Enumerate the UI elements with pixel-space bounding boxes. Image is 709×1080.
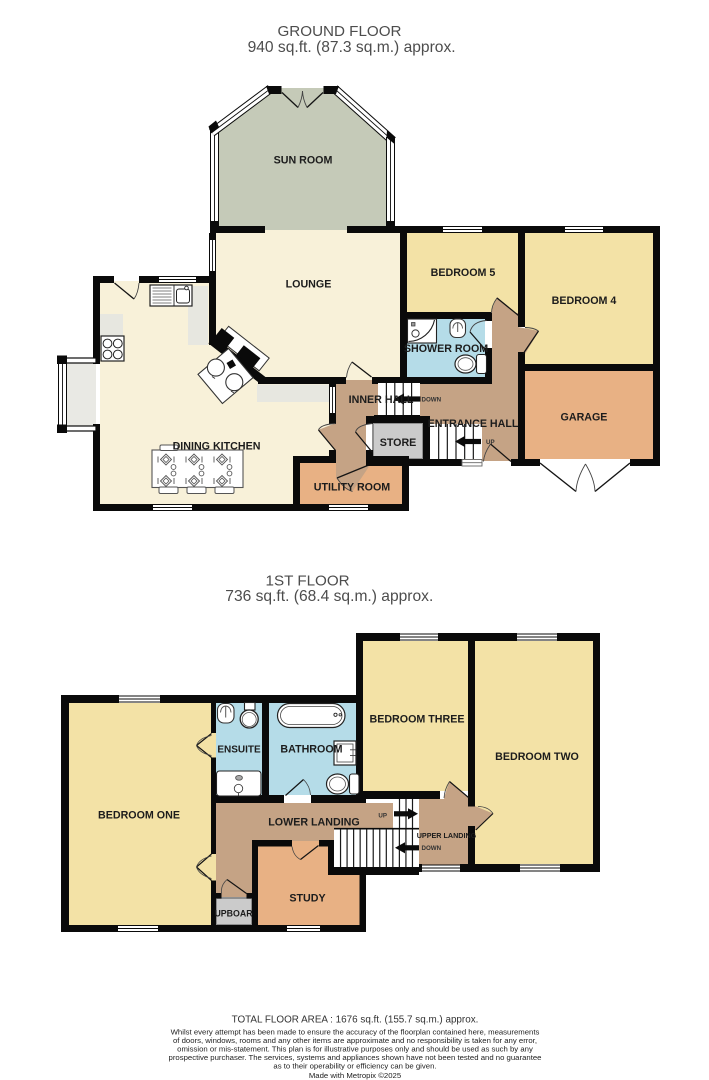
svg-text:UP: UP xyxy=(378,813,387,820)
svg-text:940 sq.ft. (87.3 sq.m.) approx: 940 sq.ft. (87.3 sq.m.) approx. xyxy=(248,39,456,56)
svg-text:LOWER LANDING: LOWER LANDING xyxy=(268,817,359,829)
svg-text:DOWN: DOWN xyxy=(422,396,442,403)
svg-text:STORE: STORE xyxy=(380,437,417,449)
svg-text:LOUNGE: LOUNGE xyxy=(286,279,332,291)
svg-text:Made with Metropix ©2025: Made with Metropix ©2025 xyxy=(309,1071,401,1080)
svg-text:1ST FLOOR: 1ST FLOOR xyxy=(266,572,350,589)
svg-text:GROUND FLOOR: GROUND FLOOR xyxy=(277,23,401,40)
svg-text:BEDROOM 5: BEDROOM 5 xyxy=(431,267,496,279)
svg-text:STUDY: STUDY xyxy=(289,893,325,905)
svg-text:SHOWER ROOM: SHOWER ROOM xyxy=(404,343,488,355)
svg-text:ENSUITE: ENSUITE xyxy=(217,745,261,756)
svg-text:INNER HALL: INNER HALL xyxy=(349,394,414,406)
svg-text:ENTRANCE HALL: ENTRANCE HALL xyxy=(428,418,519,430)
svg-text:BEDROOM TWO: BEDROOM TWO xyxy=(495,751,579,763)
svg-text:UPBOAR: UPBOAR xyxy=(214,909,253,919)
svg-text:UP: UP xyxy=(486,439,495,446)
svg-text:BEDROOM ONE: BEDROOM ONE xyxy=(98,810,180,822)
svg-text:DOWN: DOWN xyxy=(422,845,442,852)
svg-text:TOTAL FLOOR AREA : 1676 sq.ft.: TOTAL FLOOR AREA : 1676 sq.ft. (155.7 sq… xyxy=(232,1014,479,1025)
svg-text:DINING KITCHEN: DINING KITCHEN xyxy=(173,441,261,453)
svg-text:BEDROOM 4: BEDROOM 4 xyxy=(552,295,617,307)
svg-text:UPPER LANDING: UPPER LANDING xyxy=(417,831,477,840)
svg-text:BATHROOM: BATHROOM xyxy=(280,744,342,756)
svg-text:BEDROOM THREE: BEDROOM THREE xyxy=(369,714,464,726)
svg-text:as to their operability or eff: as to their operability or efficiency ca… xyxy=(273,1062,436,1071)
svg-text:UTILITY ROOM: UTILITY ROOM xyxy=(314,482,390,494)
svg-text:SUN ROOM: SUN ROOM xyxy=(274,155,333,167)
svg-text:736 sq.ft. (68.4 sq.m.) approx: 736 sq.ft. (68.4 sq.m.) approx. xyxy=(225,588,433,605)
svg-text:GARAGE: GARAGE xyxy=(561,412,608,424)
